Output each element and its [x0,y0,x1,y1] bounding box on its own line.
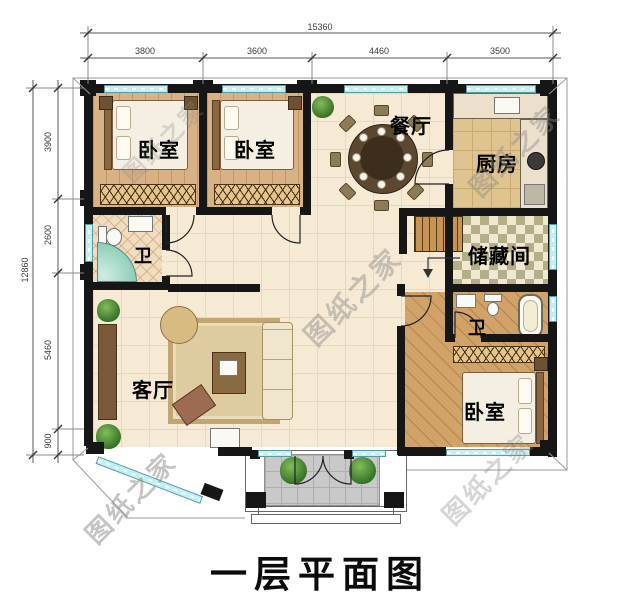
porch-step-2 [251,514,401,524]
kitchen-fridge [524,184,545,205]
dim-left-total: 12860 [20,250,30,290]
wall-bedrooms-bottom [196,207,272,215]
wall-stair-side [399,208,407,254]
room-label-living: 客厅 [132,374,174,403]
wall-pier [297,80,317,93]
window-bedroom1 [104,85,168,93]
wall-living-top [168,284,260,292]
window-dining [344,85,408,93]
bedroom1-pillow [116,106,131,130]
porch-column [384,492,404,508]
wall-bath1-right [162,215,170,250]
dining-plate [396,172,405,181]
living-cabinet [98,324,117,420]
window-bedroom2 [222,85,286,93]
wall-storage-bottom [445,284,557,292]
bedroom1-headboard [104,100,112,170]
bedroom2-headboard [212,100,220,170]
window-storage [549,224,557,270]
wall-outer-bottom [398,447,446,456]
dim-left-seg2: 2600 [43,215,53,255]
wall-kitchen-left [445,84,453,150]
dim-top-seg4: 3500 [470,46,530,56]
stairs [414,216,463,252]
bedroom3-pillow [518,378,532,404]
living-plant [97,299,120,322]
wall-bedrooms-bottom [300,207,311,215]
porch-surround [245,450,407,512]
porch-plant-right [349,457,376,484]
wall-bath2-bottom [481,334,557,342]
wall-bed2-dining [303,84,311,215]
living-tray [219,360,238,376]
wall-storage-left [445,216,453,292]
bedroom2-wardrobe [214,184,300,205]
porch-column [246,492,266,508]
wall-bedrooms-bottom [84,207,166,215]
dining-chair [330,152,341,167]
watermark: 图纸之家 [76,443,184,551]
bath2-toilet [487,302,499,316]
room-label-dining: 餐厅 [390,110,432,139]
wall-bed1-bed2 [199,84,207,215]
dim-top-seg2: 3600 [227,46,287,56]
bedroom3-nightstand [534,357,548,371]
wall-pier [193,80,213,93]
dining-chair [374,200,389,211]
room-label-storage: 储藏间 [468,240,531,269]
bedroom1-nightstand [99,96,113,110]
window-porch-left [258,450,292,457]
corner-pier [540,80,557,96]
bath1-sink [128,216,153,232]
bedroom2-pillow [224,106,239,130]
dim-top-total: 15360 [290,22,350,32]
bath2-sink [456,294,476,308]
room-label-bedroom3: 卧室 [464,396,506,425]
wall-bed3-left [397,326,405,455]
wall-bay-stub [86,442,104,454]
bedroom1-wardrobe [100,184,196,205]
dining-plate [403,153,412,162]
corner-pier [80,80,96,96]
living-sofa [262,322,293,420]
dining-plate [359,133,368,142]
bedroom2-nightstand [288,96,302,110]
page-title: 一层平面图 [0,544,640,598]
dim-left-seg3: 5460 [43,330,53,370]
dim-top-seg1: 3800 [115,46,175,56]
floor-plan-sheet: 15360 3800 3600 4460 3500 12860 3900 260… [0,0,640,614]
wall-pier [440,80,458,93]
wall-outer-bottom [218,447,252,456]
bath2-bathtub-inner [523,300,538,332]
wall-bath1-bottom [84,282,170,290]
bedroom3-headboard [536,372,544,444]
dining-plate [359,172,368,181]
window-porch-right [352,450,386,457]
room-label-bedroom2: 卧室 [234,134,276,163]
dining-plate [377,127,386,136]
wall-bay-stub [201,483,224,501]
kitchen-sink [494,97,520,114]
room-label-bath1: 卫 [134,242,153,268]
room-label-bath2: 卫 [468,314,487,340]
porch-plant-left [280,457,307,484]
window-bath2 [549,296,557,322]
dining-chair [374,105,389,116]
wall-bed3-left [397,284,405,296]
window-bath1 [85,224,93,262]
dim-left-seg1: 3900 [43,122,53,162]
wall-bath2-bottom [445,334,455,342]
wall-pier [80,264,93,280]
wall-kitchen-bottom [403,208,557,216]
bedroom3-wardrobe [453,346,545,363]
living-stand [210,428,240,448]
dining-chair [422,152,433,167]
window-kitchen [466,85,536,93]
corner-pier [540,440,557,456]
bath2-toilet-tank [484,294,502,302]
dim-left-seg4: 900 [43,421,53,461]
dining-plant [312,96,334,118]
living-side-table [160,306,198,344]
wall-pier [80,190,93,206]
dim-top-seg3: 4460 [349,46,409,56]
dining-plate [377,180,386,189]
dining-plate [352,153,361,162]
